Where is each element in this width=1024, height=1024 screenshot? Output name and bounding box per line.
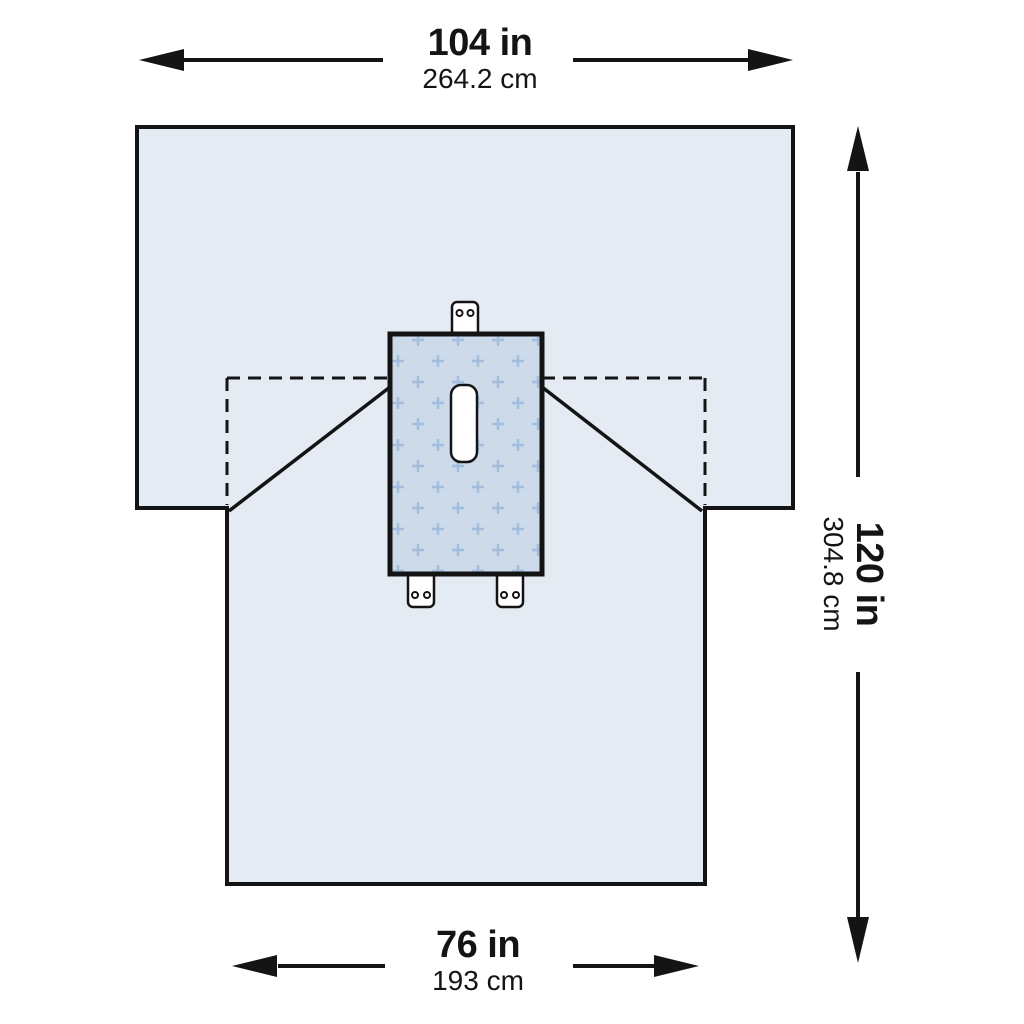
right-arrow-icon xyxy=(748,49,793,71)
adhesive-tab-top xyxy=(452,302,478,336)
down-arrow-icon xyxy=(847,917,869,963)
dimension-side-length: 120 in 304.8 cm xyxy=(818,516,888,631)
tab-hole xyxy=(457,310,463,316)
dimension-bottom-width: 76 in 193 cm xyxy=(432,926,524,996)
top-width-centimeters: 264.2 cm xyxy=(422,63,537,94)
side-length-inches: 120 in xyxy=(849,516,888,631)
tab-hole xyxy=(424,592,430,598)
fenestration-opening xyxy=(451,385,477,462)
dimension-top-width: 104 in 264.2 cm xyxy=(422,24,537,94)
top-width-inches: 104 in xyxy=(422,24,537,63)
tab-hole xyxy=(412,592,418,598)
right-arrow-icon xyxy=(654,955,699,977)
bottom-width-centimeters: 193 cm xyxy=(432,965,524,996)
tab-hole xyxy=(513,592,519,598)
up-arrow-icon xyxy=(847,126,869,171)
left-arrow-icon xyxy=(139,49,184,71)
tab-hole xyxy=(468,310,474,316)
tab-hole xyxy=(501,592,507,598)
drape-diagram-graphic xyxy=(0,0,1024,1024)
bottom-width-inches: 76 in xyxy=(432,926,524,965)
side-length-centimeters: 304.8 cm xyxy=(818,516,849,631)
left-arrow-icon xyxy=(232,955,277,977)
drape-dimension-diagram: 104 in 264.2 cm 120 in 304.8 cm 76 in 19… xyxy=(0,0,1024,1024)
